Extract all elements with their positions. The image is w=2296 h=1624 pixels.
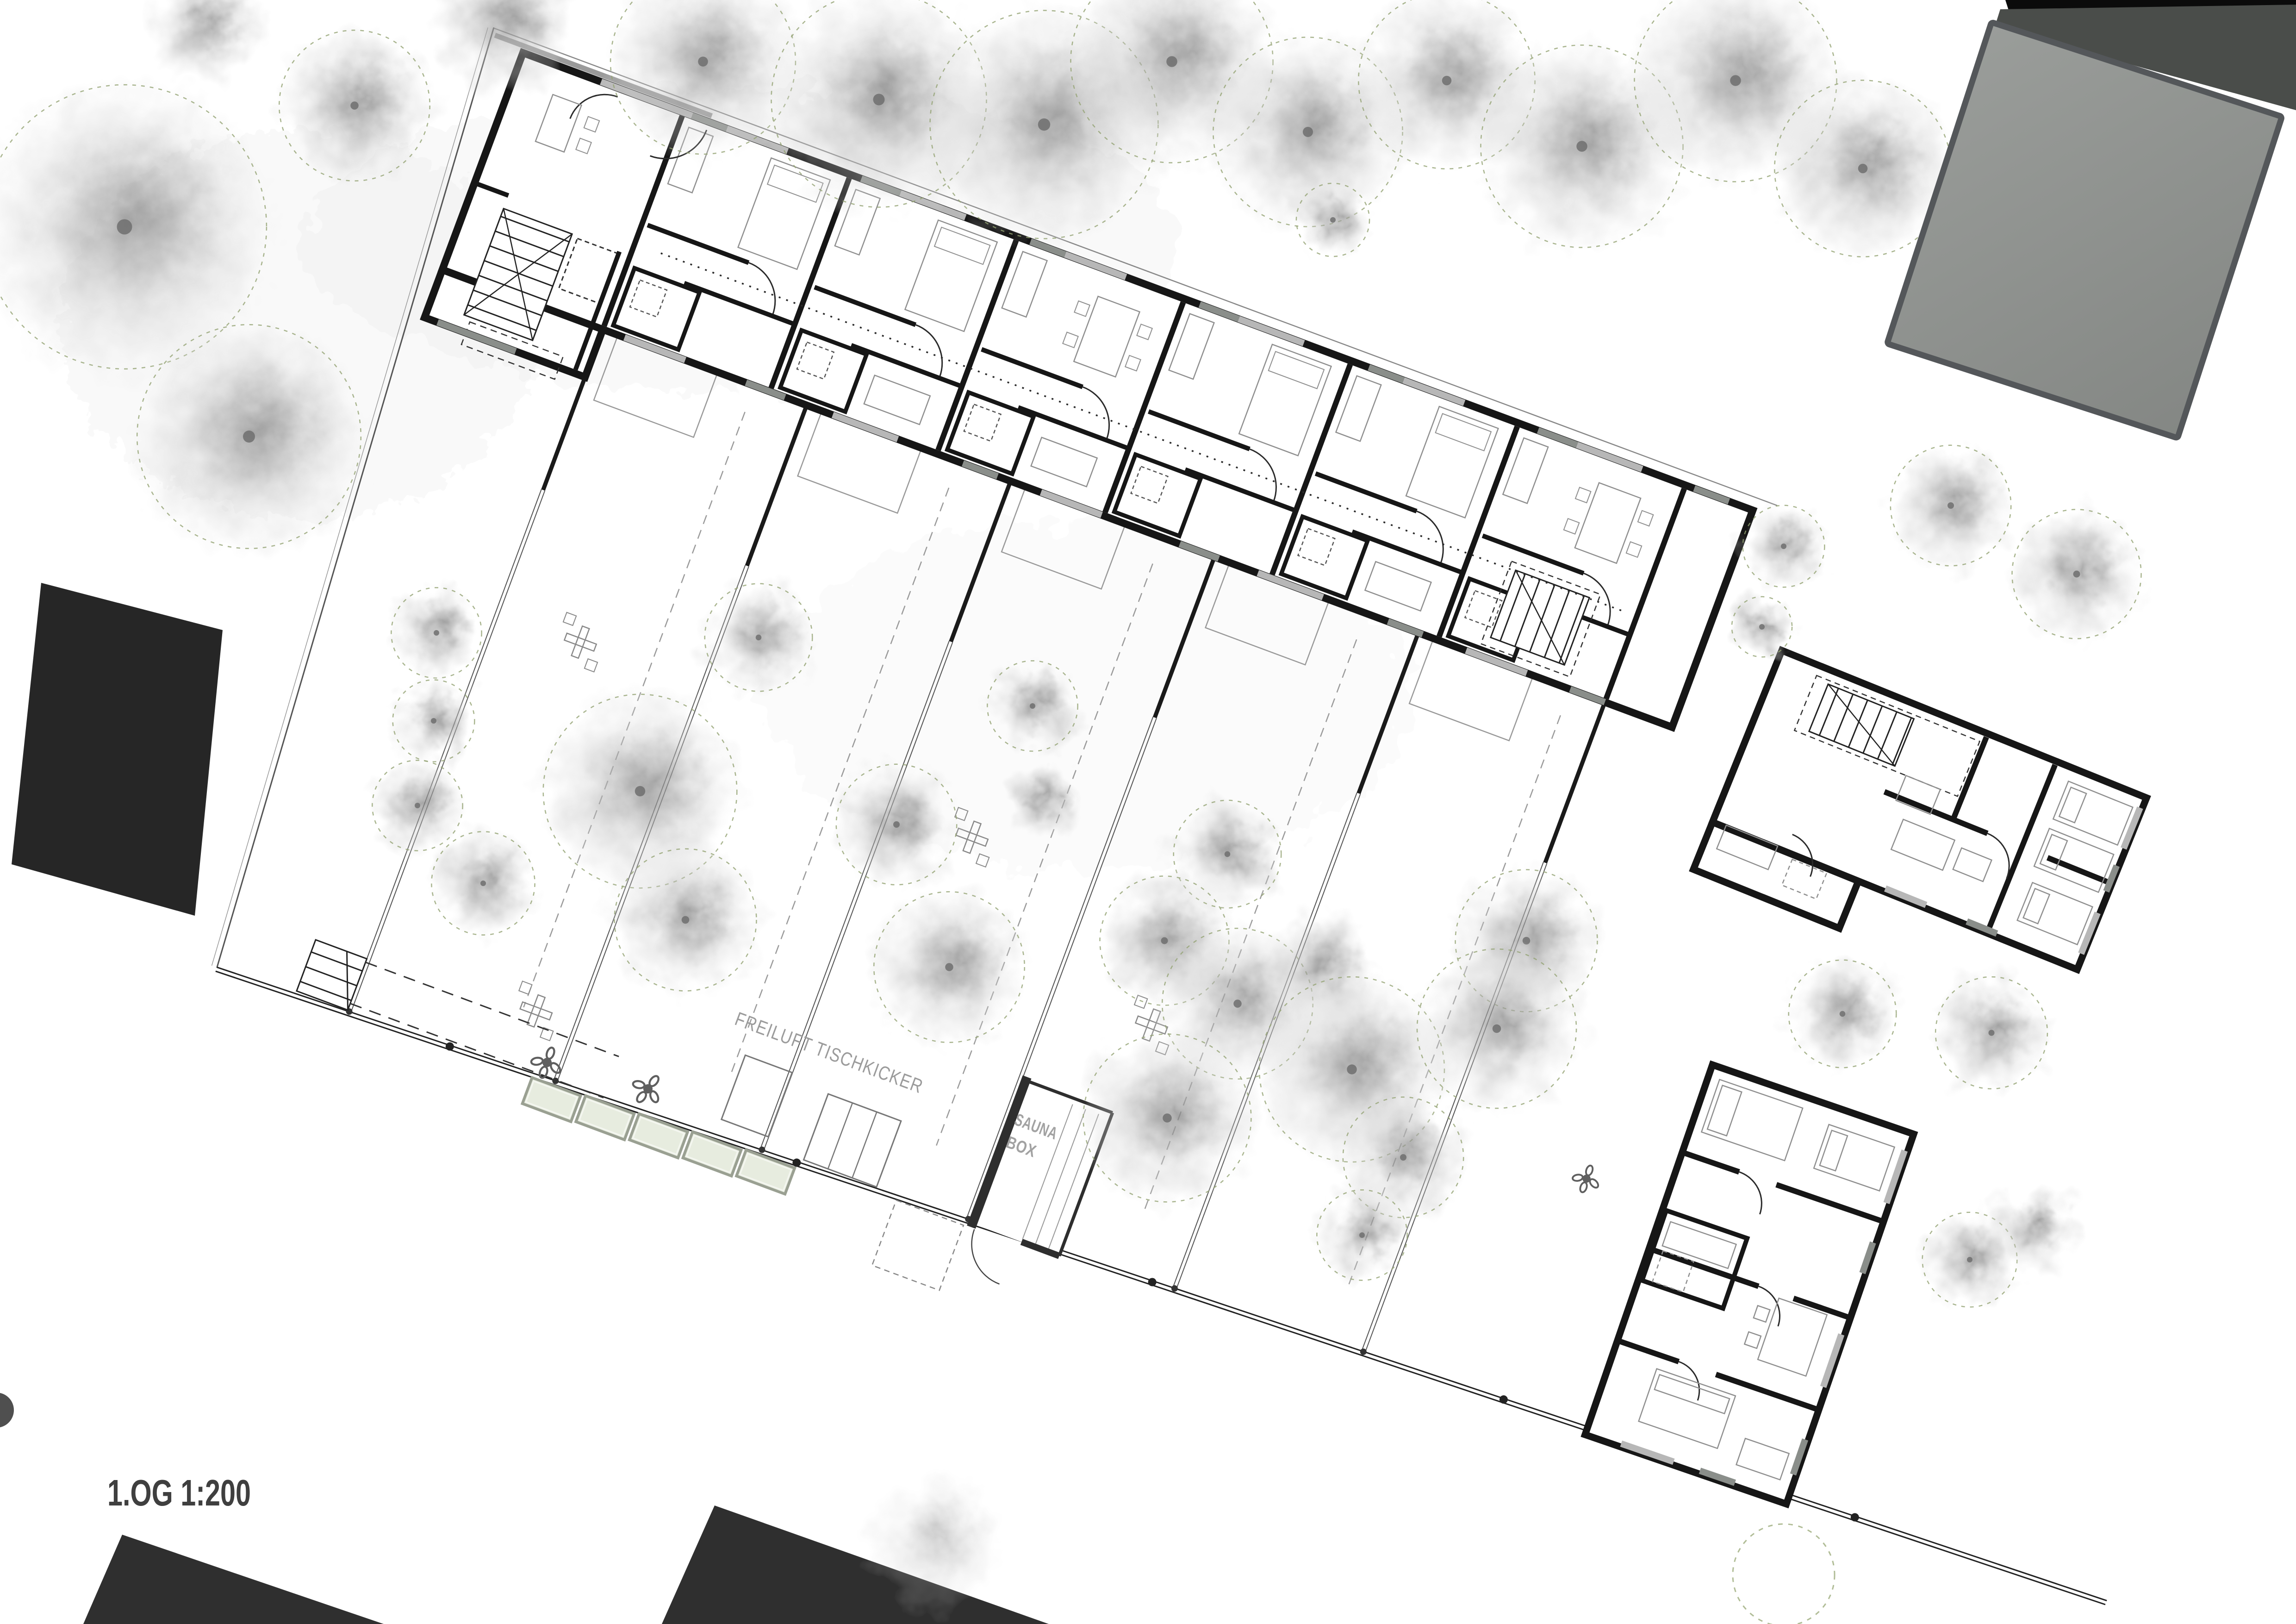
- tree-icon: [1003, 759, 1082, 838]
- tree-icon: [1730, 594, 1794, 659]
- tree-icon: [1313, 1187, 1411, 1284]
- tree-icon: [428, 828, 539, 939]
- tree-icon: [609, 843, 762, 996]
- tree-icon: [1740, 502, 1828, 590]
- scale-label: 1.OG 1:200: [107, 1472, 251, 1513]
- tree-icon: [1077, 1028, 1257, 1208]
- tree-icon: [390, 677, 478, 765]
- tree-icon: [274, 25, 436, 187]
- tree-icon: [1294, 181, 1372, 259]
- tree-icon: [129, 316, 369, 557]
- tree-icon: [2007, 505, 2146, 643]
- tree-icon: [865, 1472, 1004, 1611]
- tree-icon: [832, 760, 961, 889]
- tree-icon: [984, 657, 1081, 755]
- floor-plan-canvas: FREILUFT TISCHKICKER SAUNA BOX: [0, 0, 2296, 1624]
- tree-icon: [1886, 441, 2016, 570]
- neighbor-building-dark-left: [12, 583, 223, 916]
- tree-icon: [1785, 956, 1900, 1072]
- tree-icon: [701, 580, 816, 695]
- tree-icon: [1991, 1184, 2079, 1272]
- tree-icon: [1931, 973, 2052, 1093]
- tree-icon: [1411, 943, 1582, 1114]
- tree-icon: [388, 584, 485, 681]
- tree-icon: [868, 886, 1030, 1048]
